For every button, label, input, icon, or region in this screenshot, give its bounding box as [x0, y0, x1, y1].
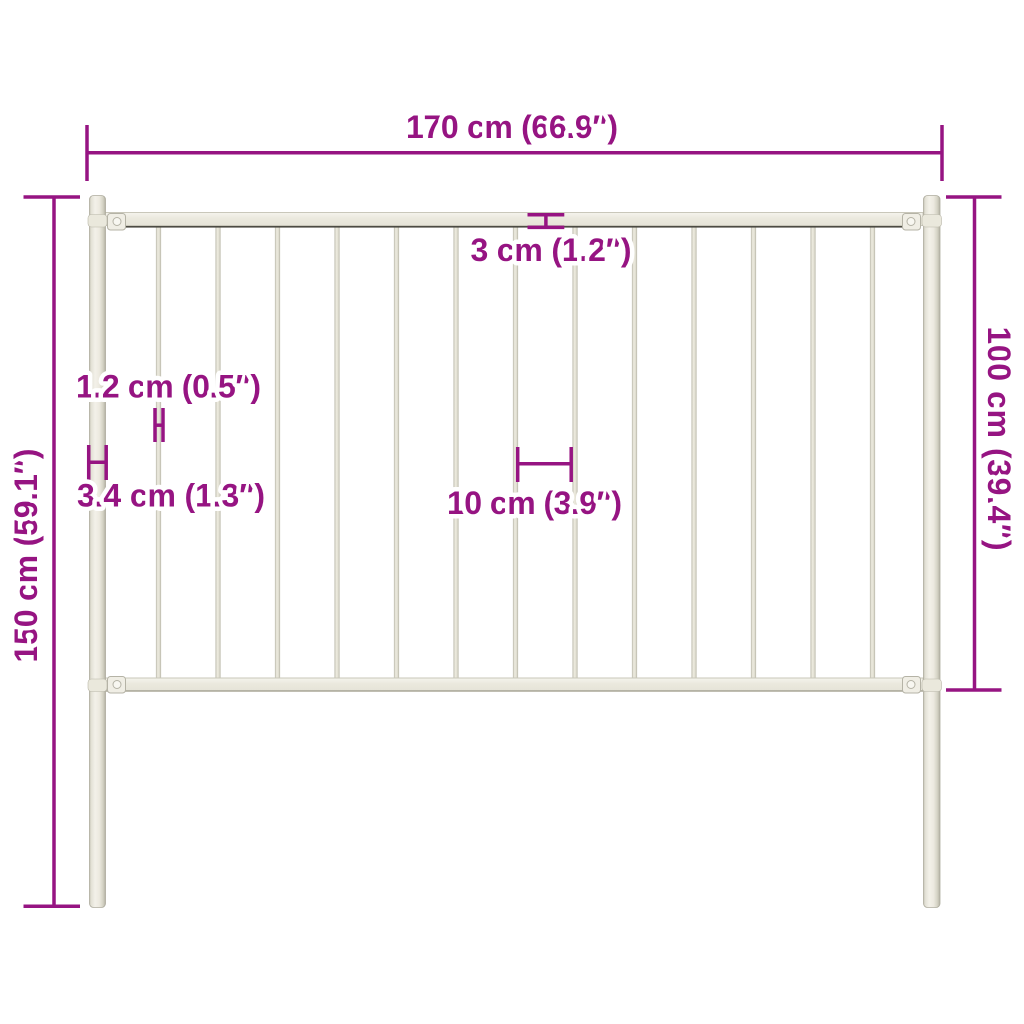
svg-text:170 cm (66.9″): 170 cm (66.9″) [406, 109, 618, 145]
svg-text:3.4 cm (1.3″): 3.4 cm (1.3″) [77, 478, 265, 514]
svg-text:100 cm (39.4″): 100 cm (39.4″) [981, 327, 1017, 551]
svg-text:1.2 cm (0.5″): 1.2 cm (0.5″) [76, 369, 261, 405]
svg-text:150 cm (59.1″): 150 cm (59.1″) [8, 449, 44, 663]
svg-text:10 cm (3.9″): 10 cm (3.9″) [447, 485, 622, 521]
svg-text:3 cm (1.2″): 3 cm (1.2″) [471, 232, 632, 268]
